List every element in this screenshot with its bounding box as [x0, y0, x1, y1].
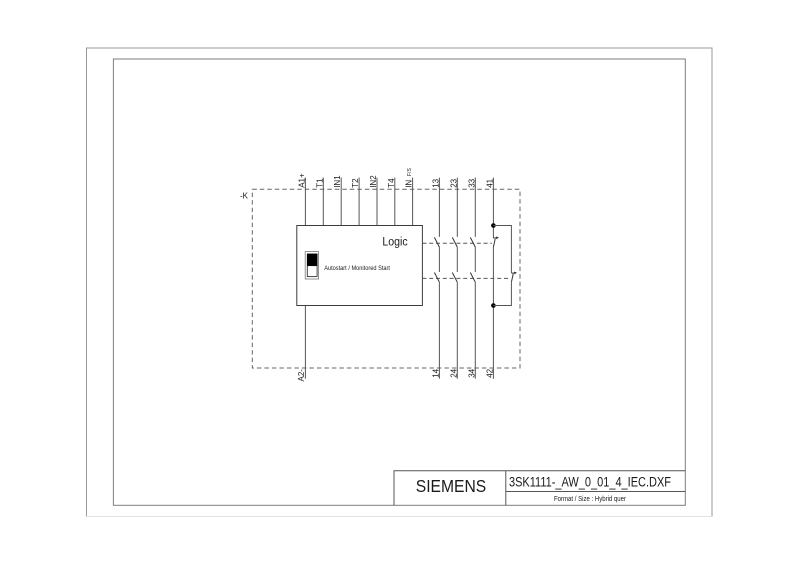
- svg-text:33: 33: [467, 178, 476, 187]
- svg-text:13: 13: [431, 178, 440, 187]
- svg-text:-K: -K: [240, 191, 249, 200]
- svg-text:3SK1111-_AW_0_01_4_IEC.DXF: 3SK1111-_AW_0_01_4_IEC.DXF: [509, 475, 671, 490]
- svg-text:IN2: IN2: [369, 175, 378, 188]
- svg-text:A1+: A1+: [297, 173, 306, 188]
- svg-text:42: 42: [485, 368, 494, 377]
- svg-text:SIEMENS: SIEMENS: [416, 476, 487, 496]
- svg-text:T1: T1: [315, 178, 324, 188]
- svg-text:T2: T2: [351, 178, 360, 188]
- svg-text:A2-: A2-: [297, 369, 306, 382]
- svg-text:T4: T4: [387, 178, 396, 188]
- svg-text:24: 24: [449, 368, 458, 377]
- svg-text:IN: IN: [405, 180, 414, 188]
- svg-text:IN1: IN1: [333, 175, 342, 188]
- svg-text:Autostart / Monitored Start: Autostart / Monitored Start: [324, 265, 390, 272]
- svg-text:Format / Size : Hybrid quer: Format / Size : Hybrid quer: [554, 496, 627, 503]
- svg-text:F/S: F/S: [407, 168, 413, 176]
- svg-text:23: 23: [449, 178, 458, 187]
- svg-text:14: 14: [431, 368, 440, 377]
- svg-text:41: 41: [485, 178, 494, 187]
- svg-text:34: 34: [467, 368, 476, 377]
- svg-text:Logic: Logic: [382, 236, 408, 248]
